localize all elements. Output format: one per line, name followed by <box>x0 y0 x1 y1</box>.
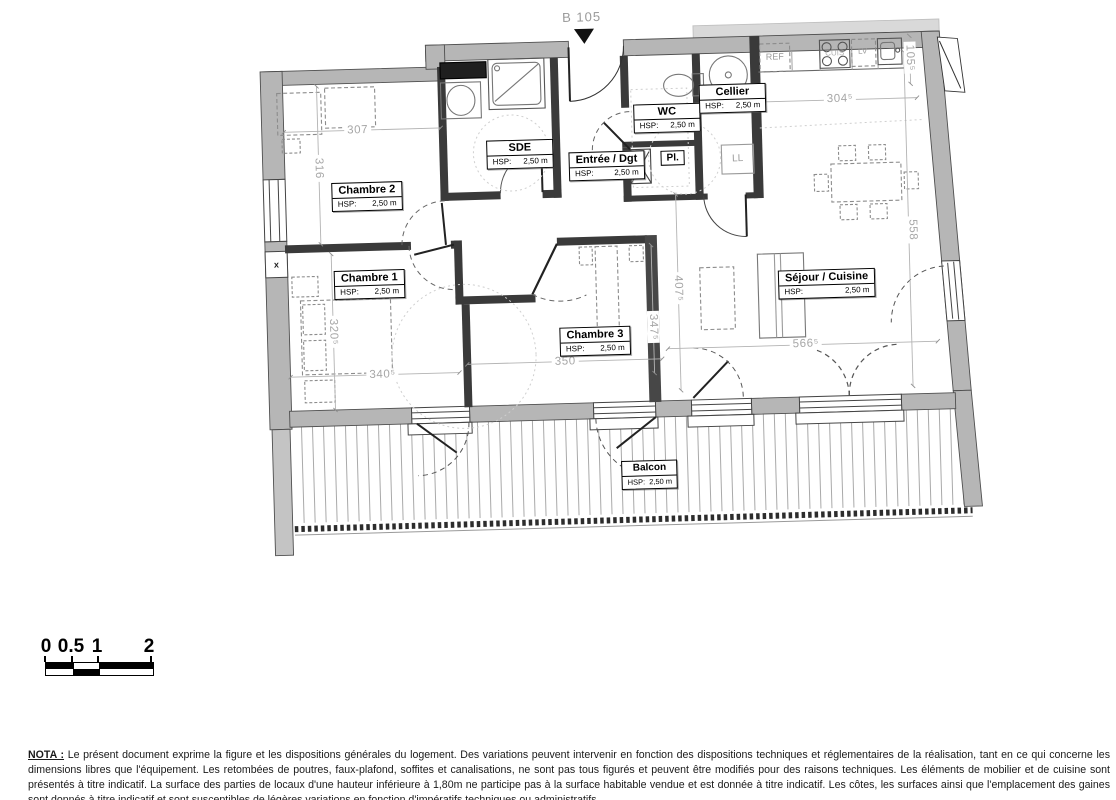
scale-tick-label: 1 <box>92 636 103 658</box>
chambre1-right-wall <box>462 304 473 407</box>
wc-door-leaf <box>604 122 631 151</box>
wall-mark: x <box>274 260 279 270</box>
closet-tag: Pl. <box>660 150 685 166</box>
dimension-label: 320⁵ <box>327 316 340 349</box>
chambre1-door-swing <box>409 245 455 291</box>
hsp-label: HSP: <box>566 344 585 354</box>
hsp-label: HSP: <box>628 477 646 486</box>
hsp-label: HSP: <box>705 101 724 111</box>
entrance-door-swing <box>568 46 624 102</box>
cellier-door-leaf <box>746 194 747 236</box>
entrance-door-leaf <box>568 47 570 101</box>
sde-sink <box>447 85 476 116</box>
hsp-label: HSP: <box>640 121 659 131</box>
nota-heading: NOTA : <box>28 749 64 761</box>
chambre3-top-wall <box>557 235 647 246</box>
corridor-wall-vertical <box>454 240 464 304</box>
chambre2-door-leaf <box>442 203 446 245</box>
shower-drain <box>494 66 499 71</box>
floor-plan-page: B 105 Chambre 2 HSP:2,50 m SDE HSP:2,50 … <box>0 0 1116 800</box>
nota-body: Le présent document exprime la figure et… <box>28 749 1110 800</box>
chambre3-balcony-window <box>593 401 655 419</box>
dimension-label: 350 <box>552 355 579 368</box>
room-name: Balcon <box>622 460 677 477</box>
entrance-arrow-icon <box>574 29 594 45</box>
sde-entree-wall <box>550 58 562 198</box>
bottom-wall-5 <box>901 393 955 411</box>
dimension-label: 407⁵ <box>672 272 685 305</box>
hsp-value: 2,50 m <box>614 167 639 177</box>
room-label-wc: WC HSP:2,50 m <box>633 103 701 134</box>
sejour-window-sill-2 <box>796 410 904 424</box>
floor-plan-svg <box>0 0 1116 647</box>
bed <box>300 298 392 374</box>
washing-machine-tag: LL <box>732 153 743 164</box>
hsp-value: 2,50 m <box>374 286 399 296</box>
stove-tag: CUIS <box>825 48 844 58</box>
dining-table <box>831 162 902 202</box>
hsp-label: HSP: <box>338 199 357 209</box>
sde-mirror-cabinet <box>440 62 486 79</box>
hsp-value: 2,50 m <box>372 198 397 208</box>
pillow <box>303 304 326 335</box>
bottom-wall-1 <box>290 408 412 427</box>
chambre3-door-leaf <box>531 244 558 295</box>
cellier-door-swing <box>704 194 747 237</box>
dishwasher-tag: LV <box>858 47 867 56</box>
nightstand <box>292 276 319 297</box>
sejour-window-sill-1 <box>688 414 754 427</box>
scale-tick-label: 0.5 <box>58 636 84 658</box>
bay-door-right-swing <box>848 344 899 395</box>
room-label-cellier: Cellier HSP:2,50 m <box>699 83 767 114</box>
bench <box>305 380 336 403</box>
chair <box>870 204 887 219</box>
dimension-label: 566⁵ <box>790 337 823 350</box>
chair <box>868 145 885 160</box>
cellier-right-wall <box>749 36 764 198</box>
floor-plan: B 105 Chambre 2 HSP:2,50 m SDE HSP:2,50 … <box>0 0 1116 647</box>
wardrobe <box>595 246 619 333</box>
chambre2-window <box>263 179 287 242</box>
bottom-wall-4 <box>751 397 799 414</box>
nightstand <box>629 245 643 261</box>
top-wall-left-of-entrance <box>425 41 568 61</box>
room-label-sejour-cuisine: Séjour / Cuisine HSP:2,50 m <box>778 268 876 300</box>
sejour-balcony-door-leaf <box>692 361 729 398</box>
chambre3-door-swing <box>532 293 586 302</box>
room-label-entree-dgt: Entrée / Dgt HSP:2,50 m <box>568 150 645 181</box>
scale-tick-label: 2 <box>144 636 155 658</box>
dimension-label: 316 <box>312 155 325 182</box>
chambre2-door-swing <box>401 201 446 246</box>
dimension-label: 105⁵ <box>903 41 916 74</box>
ch3-stub-wall <box>455 294 535 304</box>
hsp-value: 2,50 m <box>523 156 548 166</box>
bottom-wall-2 <box>469 403 593 422</box>
dimension-label: 304⁵ <box>824 92 857 105</box>
scale-tick-label: 0 <box>41 636 52 658</box>
room-label-sde: SDE HSP:2,50 m <box>486 139 554 170</box>
sde-bottom-wall-a <box>441 191 501 201</box>
balcony-left-wall <box>272 429 294 555</box>
hsp-value: 2,50 m <box>845 285 870 295</box>
desk <box>325 87 376 128</box>
ch1-ch2-divider-a <box>285 242 411 254</box>
room-label-chambre-2: Chambre 2 HSP:2,50 m <box>331 181 403 212</box>
unit-label: B 105 <box>562 9 601 25</box>
interior-walls <box>279 36 769 412</box>
faucet <box>896 48 900 52</box>
sde-left-wall <box>437 67 449 201</box>
chair <box>904 172 918 189</box>
pillow <box>304 340 327 371</box>
chair <box>814 174 828 191</box>
toilet-bowl <box>663 74 694 97</box>
hsp-label: HSP: <box>784 287 803 297</box>
dimension-label: 347⁵ <box>647 311 660 344</box>
kitchen-island <box>700 267 736 330</box>
scale-bar-graphic <box>45 662 154 676</box>
hsp-value: 2,50 m <box>670 120 695 130</box>
placard-bottom-wall <box>624 194 708 202</box>
chair <box>838 145 855 160</box>
chambre1-balcony-window <box>411 406 469 424</box>
fridge-tag: REF <box>766 51 784 61</box>
hsp-label: HSP: <box>340 287 359 297</box>
right-wall-window <box>942 260 965 321</box>
hsp-value: 2,50 m <box>600 343 625 353</box>
hsp-label: HSP: <box>493 157 512 167</box>
room-label-balcon: Balcon HSP:2,50 m <box>621 459 678 490</box>
right-window-swing <box>890 266 946 322</box>
chambre1-door-leaf <box>414 245 454 255</box>
bottom-wall-3 <box>655 400 691 417</box>
bay-door-left-swing <box>798 346 849 397</box>
hsp-value: 2,50 m <box>649 477 672 487</box>
hsp-value: 2,50 m <box>736 100 761 110</box>
shelf <box>579 247 592 265</box>
sejour-balcony-door-window <box>691 398 751 416</box>
nota-text: NOTA : Le présent document exprime la fi… <box>28 748 1110 800</box>
chambre2-top-wall <box>262 67 439 86</box>
room-label-chambre-3: Chambre 3 HSP:2,50 m <box>559 326 631 357</box>
left-wall-upper <box>260 71 285 180</box>
kitchen-soffit-line <box>760 119 924 128</box>
room-label-chambre-1: Chambre 1 HSP:2,50 m <box>334 269 406 300</box>
chair <box>840 204 857 219</box>
dimension-label: 558 <box>906 216 919 243</box>
dimension-label: 340⁵ <box>366 368 399 381</box>
hsp-label: HSP: <box>575 169 594 179</box>
dimension-label: 307 <box>344 124 371 137</box>
